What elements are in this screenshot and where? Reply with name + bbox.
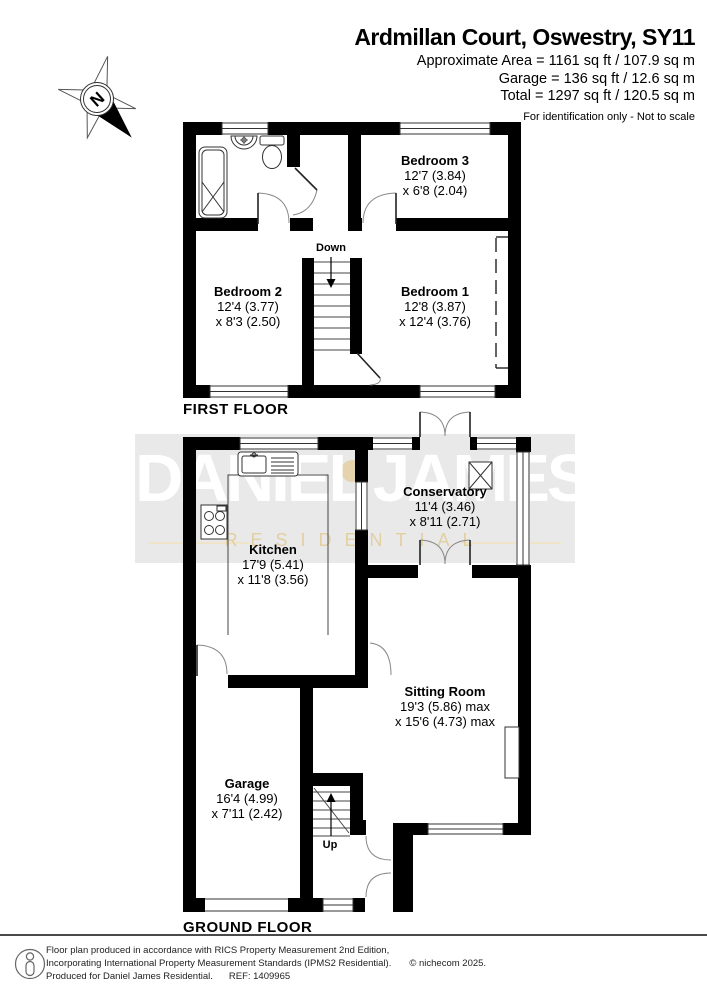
person-icon [13, 946, 47, 982]
room-label-bedroom-3: Bedroom 3 12'7 (3.84) x 6'8 (2.04) [401, 153, 469, 198]
footer-reference: REF: 1409965 [229, 971, 290, 982]
footer-line-1: Floor plan produced in accordance with R… [46, 944, 696, 957]
stairs-down-label: Down [316, 242, 346, 254]
chimney-recess [505, 727, 519, 778]
room-label-sitting-room: Sitting Room 19'3 (5.86) max x 15'6 (4.7… [395, 684, 495, 729]
room-label-bedroom-1: Bedroom 1 12'8 (3.87) x 12'4 (3.76) [399, 284, 471, 329]
compass-north-icon: N [49, 47, 147, 148]
room-label-bedroom-2: Bedroom 2 12'4 (3.77) x 8'3 (2.50) [214, 284, 282, 329]
first-floor-walls [183, 122, 521, 398]
footer-line-3: Produced for Daniel James Residential. [46, 971, 213, 982]
footer-text: Floor plan produced in accordance with R… [46, 944, 696, 983]
floorplan-drawing: N [0, 0, 707, 1000]
up-arrow-icon [327, 793, 336, 802]
first-floor-doors [258, 168, 396, 385]
bathroom-fixtures [199, 136, 284, 218]
kitchen-sink-icon [238, 452, 298, 476]
footer-divider [0, 934, 707, 936]
floorplan-page: Ardmillan Court, Oswestry, SY11 Approxim… [0, 0, 707, 1000]
staircase-down [314, 257, 350, 350]
wardrobe-outline [496, 237, 508, 368]
toilet-icon [260, 136, 284, 145]
conservatory-glazing [516, 452, 530, 565]
room-label-kitchen: Kitchen 17'9 (5.41) x 11'8 (3.56) [238, 542, 309, 587]
room-label-conservatory: Conservatory 11'4 (3.46) x 8'11 (2.71) [403, 484, 487, 529]
stairs-up-label: Up [323, 839, 338, 851]
footer-line-2: Incorporating International Property Mea… [46, 958, 391, 969]
footer-copyright: © nichecom 2025. [409, 958, 486, 969]
garage-door-opening [205, 899, 288, 911]
first-floor-title: FIRST FLOOR [183, 401, 289, 418]
room-label-garage: Garage 16'4 (4.99) x 7'11 (2.42) [212, 776, 283, 821]
hob-icon [201, 505, 227, 539]
